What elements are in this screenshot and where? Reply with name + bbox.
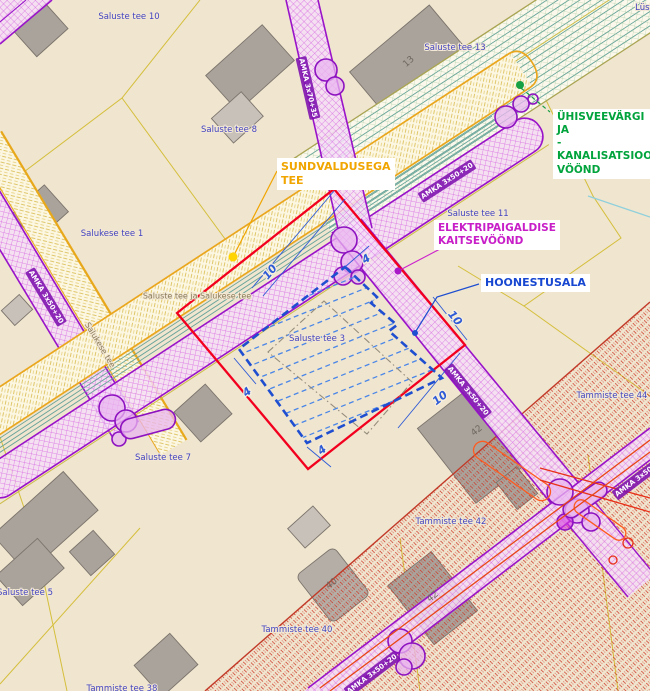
annotation-line: JA — [557, 124, 650, 137]
annotation-line: ELEKTRIPAIGALDISE — [438, 222, 556, 235]
addr-label: Tammiste tee 44 — [576, 391, 648, 401]
leader-dot-yellow — [229, 253, 238, 262]
svg-text:Saluste tee 5: Saluste tee 5 — [0, 588, 53, 598]
leader-dot-purple — [395, 268, 402, 275]
svg-text:Salukese tee 1: Salukese tee 1 — [81, 229, 143, 239]
svg-text:Tammiste tee 38: Tammiste tee 38 — [86, 684, 158, 691]
annotation-hoonestusala: HOONESTUSALA — [481, 274, 590, 292]
addr-label: Lüst — [635, 3, 650, 13]
annotation-elektripaigaldise-kaitsevoond: ELEKTRIPAIGALDISE KAITSEVÖÖND — [434, 220, 560, 250]
map-canvas[interactable]: AMKA 3x70+35AMKA 3x50+20AMKA 3x50+20AMKA… — [0, 0, 650, 691]
addr-label: Saluste tee 3 — [289, 334, 345, 344]
annotation-line: TEE — [281, 174, 391, 188]
svg-text:Tammiste tee 42: Tammiste tee 42 — [415, 517, 487, 527]
svg-text:Lüst: Lüst — [635, 3, 650, 13]
svg-text:Saluste tee 8: Saluste tee 8 — [201, 125, 257, 135]
addr-label: Tammiste tee 42 — [415, 517, 487, 527]
addr-label: Saluste tee 7 — [135, 453, 191, 463]
map-viewport[interactable]: AMKA 3x70+35AMKA 3x50+20AMKA 3x50+20AMKA… — [0, 0, 650, 691]
annotation-line: HOONESTUSALA — [485, 276, 586, 290]
annotation-line: -KANALISATSIOONI — [557, 137, 650, 163]
svg-text:Saluste tee 3: Saluste tee 3 — [289, 334, 345, 344]
svg-text:Tammiste tee 44: Tammiste tee 44 — [576, 391, 648, 401]
addr-label: Saluste tee 8 — [201, 125, 257, 135]
addr-label: Saluste tee 5 — [0, 588, 53, 598]
addr-label: Saluste tee 10 — [98, 12, 159, 22]
svg-text:Tammiste tee 40: Tammiste tee 40 — [261, 625, 333, 635]
svg-text:Saluste tee 7: Saluste tee 7 — [135, 453, 191, 463]
svg-text:Saluste tee 10: Saluste tee 10 — [98, 12, 159, 22]
annotation-line: VÖÖND — [557, 164, 650, 177]
addr-label: Tammiste tee 40 — [261, 625, 333, 635]
addr-label: Saluste tee 13 — [424, 43, 485, 53]
leader-dot-blue — [412, 330, 418, 336]
road-label: Saluste tee ja Salukese tee — [143, 292, 251, 301]
svg-text:Saluste tee 13: Saluste tee 13 — [424, 43, 485, 53]
annotation-sundvaldusega-tee: SUNDVALDUSEGA TEE — [277, 158, 395, 190]
annotation-line: SUNDVALDUSEGA — [281, 160, 391, 174]
annotation-line: KAITSEVÖÖND — [438, 235, 556, 248]
addr-label: Tammiste tee 38 — [86, 684, 158, 691]
leader-dot-green — [516, 81, 524, 89]
addr-label: Saluste tee 11 — [447, 209, 508, 219]
annotation-line: ÜHISVEEVÄRGI — [557, 111, 650, 124]
svg-text:Saluste tee ja Salukese tee: Saluste tee ja Salukese tee — [143, 292, 251, 301]
annotation-uhisveevargi-voond: ÜHISVEEVÄRGI JA -KANALISATSIOONI VÖÖND — [553, 109, 650, 179]
addr-label: Salukese tee 1 — [81, 229, 143, 239]
svg-text:Saluste tee 11: Saluste tee 11 — [447, 209, 508, 219]
